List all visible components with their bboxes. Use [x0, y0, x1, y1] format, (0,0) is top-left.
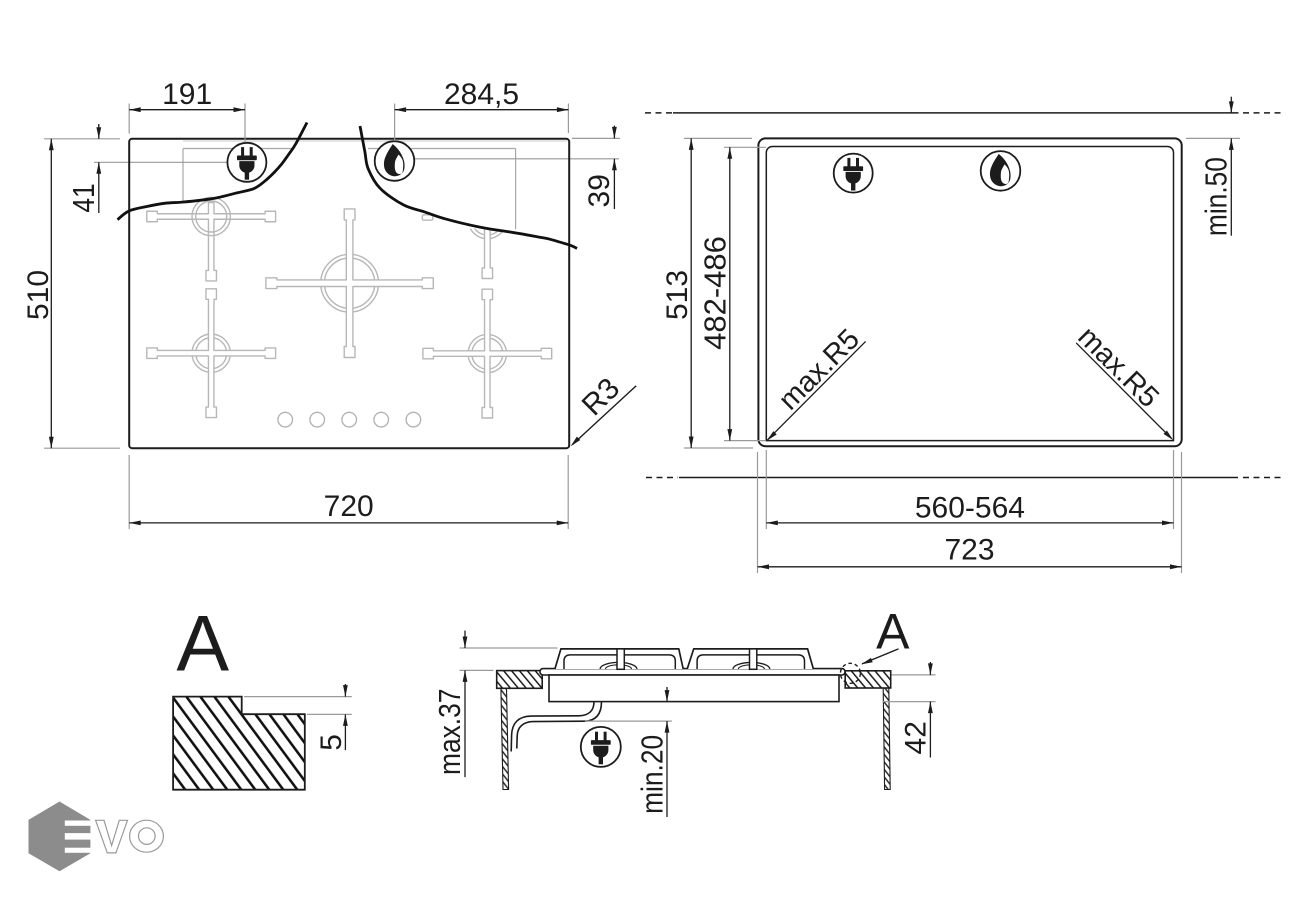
svg-text:560-564: 560-564 [915, 492, 1025, 525]
svg-text:513: 513 [661, 270, 694, 320]
svg-text:41: 41 [67, 183, 101, 212]
svg-text:A: A [876, 604, 910, 660]
svg-text:284,5: 284,5 [444, 78, 519, 111]
svg-text:5: 5 [315, 734, 348, 751]
svg-text:max.37: max.37 [433, 689, 467, 775]
svg-text:42: 42 [899, 721, 932, 754]
svg-text:min.20: min.20 [635, 735, 669, 814]
svg-text:A: A [176, 598, 229, 687]
svg-text:723: 723 [944, 534, 994, 567]
svg-text:min.50: min.50 [1200, 157, 1234, 236]
svg-text:191: 191 [162, 78, 212, 111]
svg-text:482-486: 482-486 [698, 236, 733, 350]
svg-text:39: 39 [583, 174, 616, 207]
svg-text:510: 510 [22, 270, 55, 320]
svg-text:720: 720 [324, 490, 374, 523]
